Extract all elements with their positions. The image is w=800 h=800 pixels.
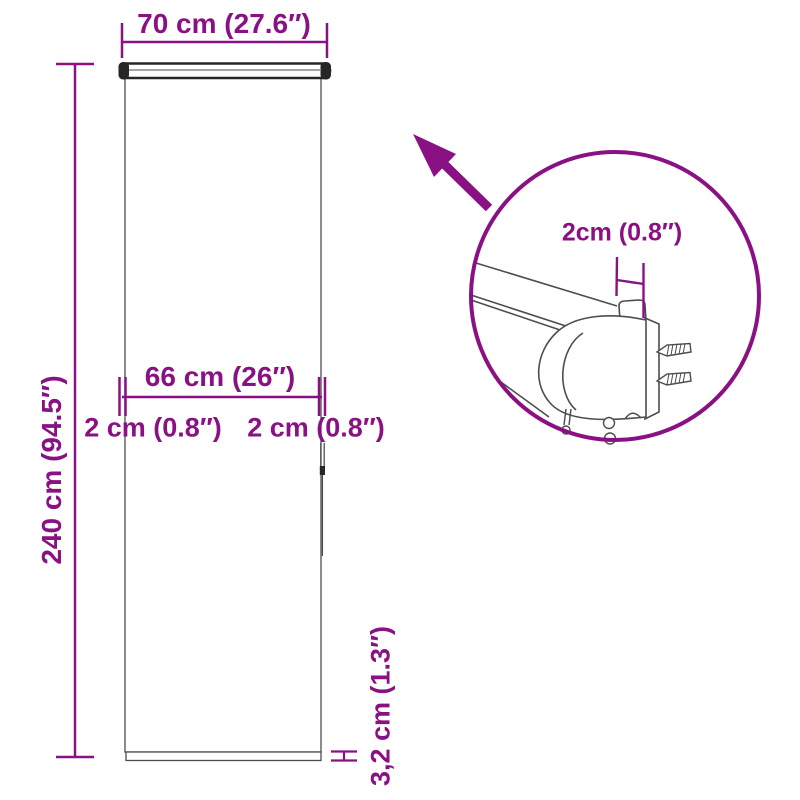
label-total-height: 240 cm (94.5″)	[36, 375, 68, 564]
bracket-mechanism-drawing	[471, 263, 691, 444]
label-fabric-width: 66 cm (26″)	[145, 361, 295, 393]
diagram-linework	[0, 0, 800, 800]
blind-cassette	[120, 64, 330, 79]
roller-blind-drawing	[119, 62, 332, 761]
label-left-gap: 2 cm (0.8″)	[84, 413, 222, 444]
tube-front-edge	[471, 295, 575, 329]
label-total-width: 70 cm (27.6″)	[137, 8, 311, 40]
screw-top	[657, 344, 691, 357]
tube-front-edge-2	[471, 300, 566, 332]
detail-callout	[413, 134, 759, 444]
label-detail-bracket-depth: 2cm (0.8″)	[562, 219, 682, 248]
dim-bottom-bar-lines	[331, 752, 357, 761]
tube-top-edge	[476, 263, 617, 306]
screw-bottom	[657, 373, 691, 386]
label-right-gap: 2 cm (0.8″)	[247, 413, 385, 444]
label-bottom-bar-height: 3,2 cm (1.3″)	[366, 626, 397, 786]
end-cap	[539, 316, 646, 420]
cassette-end-cap-left	[119, 62, 130, 80]
bracket-plate	[645, 318, 659, 419]
detail-arrow	[413, 134, 489, 208]
blind-bottom-bar	[126, 752, 321, 761]
dimension-diagram: 70 cm (27.6″) 240 cm (94.5″) 66 cm (26″)…	[0, 0, 800, 800]
cassette-end-cap-right	[321, 62, 332, 80]
